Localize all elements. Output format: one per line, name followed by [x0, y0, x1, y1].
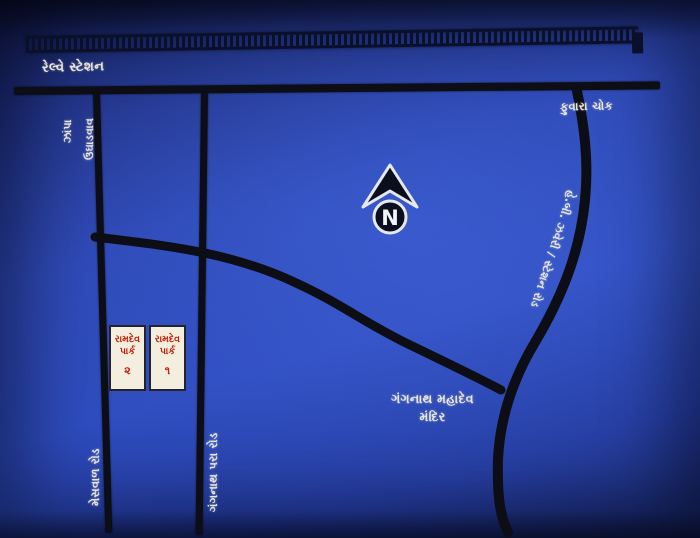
temple-label-line2: મંદિર — [375, 408, 490, 426]
park2-line1: રામદેવ — [115, 334, 140, 346]
fuvara-chowk-label: ફુવારા ચોક — [560, 99, 613, 115]
top-left-road-label-part1: ઉઘાડવાવ — [83, 118, 97, 160]
north-arrow-graphic: N — [358, 162, 422, 236]
middle-road-label: ગંગનાથ પરા રોડ — [206, 433, 221, 512]
park1-line2: પાર્ક — [160, 346, 175, 358]
top-left-road-label-part2: ઝાંપા — [61, 119, 75, 143]
park-boxes: રામદેવ પાર્ક ૨ રામદેવ પાર્ક ૧ — [109, 325, 186, 391]
park2-line2: પાર્ક — [120, 346, 135, 358]
north-letter: N — [381, 206, 399, 230]
park2-number: ૨ — [124, 364, 130, 378]
temple-label: ગંગનાથ મહાદેવ મંદિર — [375, 390, 490, 426]
curved-roads — [0, 0, 700, 538]
temple-label-line1: ગંગનાથ મહાદેવ — [375, 390, 490, 408]
park1-line1: રામદેવ — [155, 334, 180, 346]
north-arrow-icon: N — [358, 162, 422, 236]
right-curved-road — [498, 91, 587, 532]
ramdev-park-2-box: રામદેવ પાર્ક ૨ — [109, 325, 146, 391]
bottom-left-road-label: મેસવાળ રોડ — [88, 448, 103, 506]
map-canvas: રેલ્વે સ્ટેશન ફુવારા ચોક N રામદેવ પાર્ક … — [0, 0, 700, 538]
park1-number: ૧ — [165, 364, 170, 378]
ramdev-park-1-box: રામદેવ પાર્ક ૧ — [149, 325, 186, 391]
